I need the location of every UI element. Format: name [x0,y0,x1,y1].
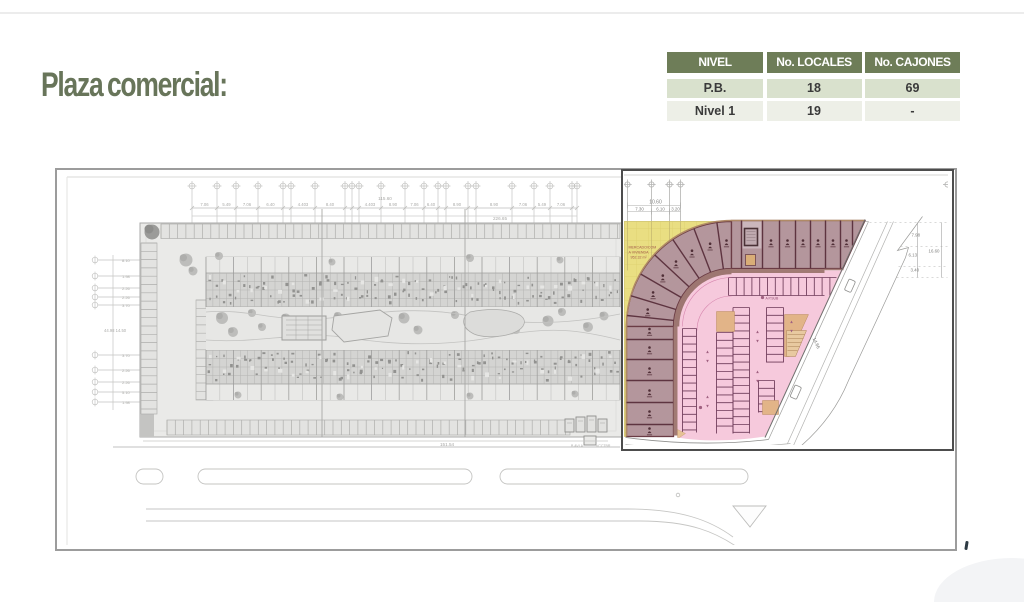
svg-text:7.06: 7.06 [200,202,209,207]
svg-text:8.40: 8.40 [326,202,335,207]
svg-text:2.26: 2.26 [122,295,131,300]
svg-text:7.06: 7.06 [519,202,528,207]
svg-text:8.90: 8.90 [490,202,499,207]
svg-text:115.60: 115.60 [378,196,392,201]
svg-text:16.60: 16.60 [928,248,940,253]
svg-text:6.10: 6.10 [656,206,665,211]
svg-text:MERCADO/COM: MERCADO/COM [628,245,656,249]
svg-text:6.13: 6.13 [908,252,917,257]
svg-text:1.98: 1.98 [122,400,131,405]
svg-text:8.90: 8.90 [389,202,398,207]
svg-text:44.98 14.50: 44.98 14.50 [104,328,127,333]
svg-text:2.26: 2.26 [122,380,131,385]
svg-text:5.49: 5.49 [538,202,547,207]
svg-text:7.06: 7.06 [557,202,566,207]
svg-text:8.90: 8.90 [453,202,462,207]
svg-text:3.20: 3.20 [671,206,680,211]
svg-text:6.40: 6.40 [266,202,275,207]
svg-text:4.403: 4.403 [365,202,376,207]
svg-text:1.98: 1.98 [122,274,131,279]
svg-text:7.06: 7.06 [243,202,252,207]
svg-text:5.10: 5.10 [122,390,131,395]
svg-text:7.98: 7.98 [911,232,920,237]
svg-text:952.32 m²: 952.32 m² [630,255,647,259]
svg-text:6.40: 6.40 [427,202,436,207]
svg-text:4.403: 4.403 [298,202,309,207]
svg-text:A P.SUB: A P.SUB [765,296,778,300]
svg-text:3.70: 3.70 [122,303,131,308]
svg-text:3.40: 3.40 [910,267,919,272]
svg-text:5.49: 5.49 [222,202,231,207]
svg-text:7.06: 7.06 [410,202,419,207]
svg-text:8.10: 8.10 [122,258,131,263]
svg-text:2.26: 2.26 [122,286,131,291]
svg-text:14.66: 14.66 [811,336,821,349]
svg-text:7.30: 7.30 [635,206,644,211]
svg-text:A VIVIENDA: A VIVIENDA [628,250,649,254]
svg-text:2.26: 2.26 [122,368,131,373]
svg-text:10.60: 10.60 [649,199,662,205]
svg-text:226.65: 226.65 [493,216,507,221]
svg-text:151.54: 151.54 [440,442,454,447]
svg-text:3.70: 3.70 [122,353,131,358]
